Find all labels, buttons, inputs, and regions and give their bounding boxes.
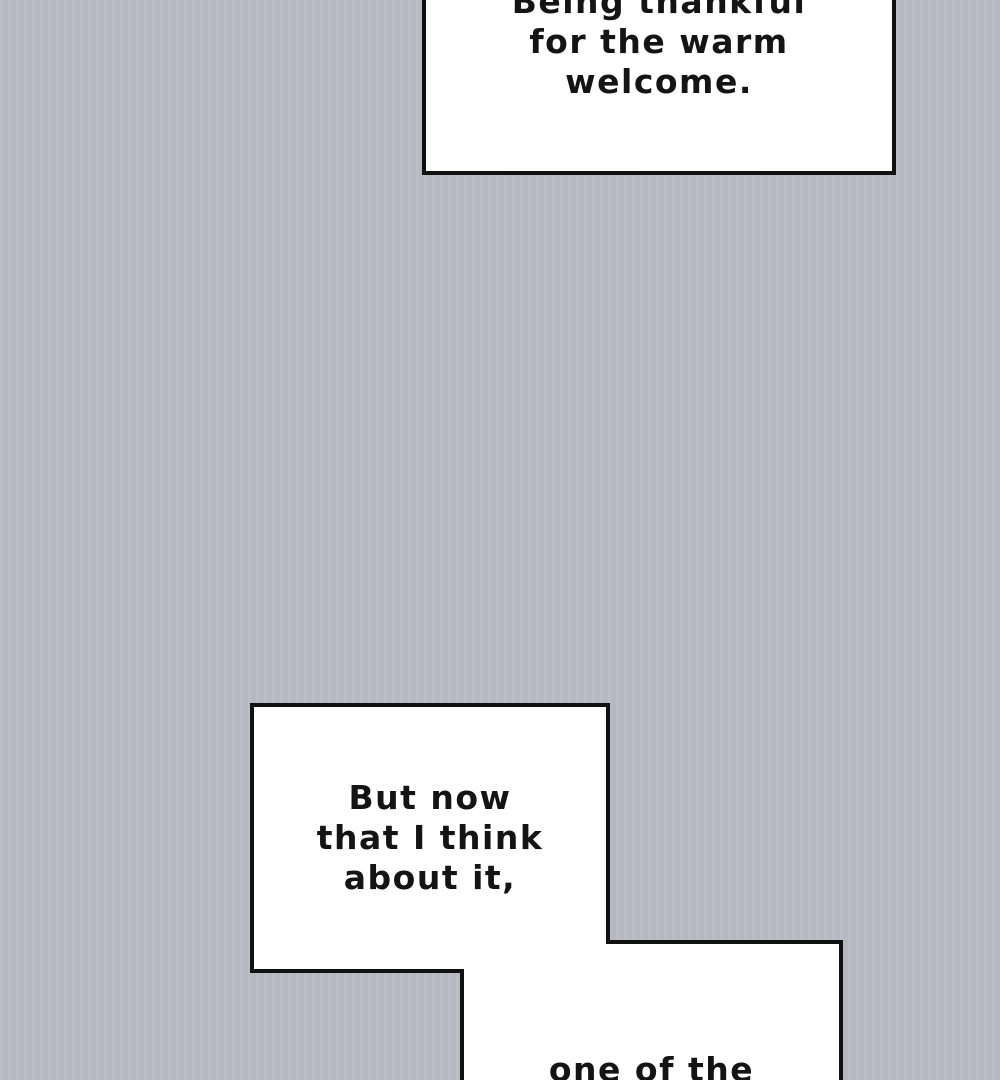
dialogue-line: for the warm (512, 22, 807, 62)
bubble-join-patch (460, 940, 606, 969)
speech-bubble-bottom-text: one of the (464, 1050, 839, 1080)
speech-bubble-middle: But now that I think about it, (250, 703, 610, 973)
speech-bubble-top: Being thankful for the warm welcome. (422, 0, 896, 175)
dialogue-line: about it, (317, 858, 544, 898)
dialogue-line: one of the (464, 1050, 839, 1080)
comic-panel: Being thankful for the warm welcome. But… (0, 0, 1000, 1080)
dialogue-line: Being thankful (512, 0, 807, 22)
dialogue-line: But now (317, 778, 544, 818)
dialogue-line: that I think (317, 818, 544, 858)
dialogue-line: welcome. (512, 62, 807, 102)
speech-bubble-middle-text: But now that I think about it, (317, 778, 544, 898)
speech-bubble-top-text: Being thankful for the warm welcome. (512, 0, 807, 102)
